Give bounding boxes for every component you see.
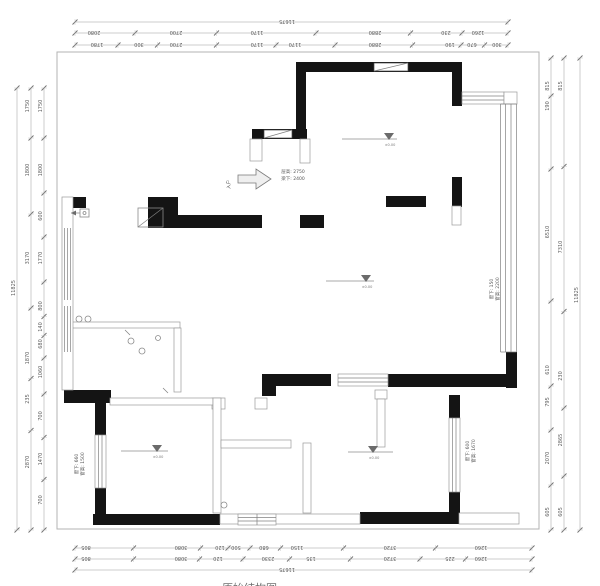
dim-left-total: 11825 <box>11 86 20 533</box>
dim-value: 2080 <box>88 29 101 35</box>
partition-bath-right <box>174 328 181 392</box>
level-marker: ±0.00 <box>326 275 374 289</box>
floor-plan-canvas: ±0.00 ±0.00 ±0.00 ±0.00 入户 层高: 2750 梁下: … <box>0 0 600 586</box>
dim-value: 11675 <box>279 566 295 572</box>
dim-value: 3720 <box>384 555 397 561</box>
wall-br-right-upper <box>449 395 460 418</box>
dim-value: 2880 <box>369 29 382 35</box>
dim-value: 2700 <box>170 41 183 47</box>
floor-drain-icon <box>139 348 145 354</box>
wall-bottom-thin-right <box>459 513 519 524</box>
ceiling-note-line1: 层高: 2750 <box>281 168 305 175</box>
window-right-note-line2: 窗高: 2200 <box>494 277 501 301</box>
door-jamb <box>452 206 461 225</box>
dim-value: 1750 <box>38 100 44 113</box>
partition-room-v <box>303 443 311 513</box>
dim-value: 1170 <box>251 29 264 35</box>
windows <box>65 92 518 525</box>
dim-value: 1150 <box>291 544 304 550</box>
dim-value: 670 <box>467 41 477 47</box>
dim-value: 2880 <box>369 41 382 47</box>
partition-room-v2 <box>377 399 385 447</box>
dim-value: 11825 <box>574 287 580 303</box>
dim-value: 190 <box>545 101 551 111</box>
dim-value: 605 <box>545 507 551 517</box>
level-marker: ±0.00 <box>121 445 168 459</box>
dim-value: 500 <box>231 544 241 550</box>
dim-value: 1170 <box>289 41 302 47</box>
dim-value: 3170 <box>25 252 31 265</box>
dim-value: 300 <box>492 41 502 47</box>
entry-label: 入户 <box>225 180 232 189</box>
dim-value: 300 <box>134 41 144 47</box>
pipe-icon <box>85 316 91 322</box>
pipe-icon <box>76 316 82 322</box>
dim-value: 1770 <box>38 252 44 265</box>
wall-mid-right-h <box>386 196 426 207</box>
entry-arrow-icon <box>238 169 271 189</box>
dim-value: 680 <box>259 544 269 550</box>
dim-value: 700 <box>38 495 44 505</box>
dim-value: 1060 <box>38 366 44 379</box>
partition-hall-left <box>213 398 221 513</box>
window-right-long <box>501 104 517 352</box>
dim-value: 2865 <box>558 434 564 447</box>
dim-value: 795 <box>545 397 551 407</box>
dim-value: 1750 <box>25 100 31 113</box>
window-right-note-line1: 窗下: 150 <box>488 279 495 300</box>
dim-value: 135 <box>306 555 316 561</box>
dim-value: 700 <box>38 411 44 421</box>
floor-plan-drawing: ±0.00 ±0.00 ±0.00 ±0.00 入户 层高: 2750 梁下: … <box>0 0 600 586</box>
dim-value: 2330 <box>262 555 275 561</box>
wall-bl-left-upper <box>95 390 106 435</box>
window-top-right <box>462 92 517 104</box>
door-jamb <box>255 398 267 409</box>
door-jamb <box>250 139 262 161</box>
window-left-note-line2: 窗高: 1500 <box>79 452 86 476</box>
dim-value: 6510 <box>545 226 551 239</box>
window-br-note-line2: 窗高: 1670 <box>470 439 477 463</box>
wall-entry-stub <box>300 215 324 228</box>
dim-value: 2700 <box>170 29 183 35</box>
wall-mid-right-v <box>452 177 462 207</box>
gas-meter-icon <box>71 209 89 217</box>
dim-value: 11825 <box>11 280 17 296</box>
dim-right-total: 11825 <box>574 56 583 533</box>
partition-bath-top <box>63 322 180 328</box>
dim-left-outer: 17501800317018702352870 <box>25 86 34 533</box>
wall-entry <box>178 215 262 228</box>
dim-value: 1780 <box>91 41 104 47</box>
floor-drain-icon <box>156 336 161 341</box>
wall-bl-left-lower <box>95 488 106 514</box>
dim-value: 2870 <box>25 456 31 469</box>
dim-value: 600 <box>38 211 44 221</box>
tick-mark <box>125 330 130 335</box>
dim-value: 1260 <box>472 29 485 35</box>
window-mid-ladder <box>338 374 388 386</box>
dim-value: 805 <box>81 544 91 550</box>
wall-br-right-lower <box>449 492 460 514</box>
dim-top-inner: 17803002700117011702880190670300 <box>73 41 511 48</box>
dim-value: 3080 <box>175 555 188 561</box>
dim-value: 1800 <box>25 164 31 177</box>
level-value: ±0.00 <box>362 285 373 289</box>
dim-value: 800 <box>38 301 44 311</box>
door-jamb <box>375 390 387 399</box>
wall-bottom-mid-right <box>388 374 517 387</box>
window-bottom-ladder <box>238 514 276 525</box>
dim-value: 7310 <box>558 241 564 254</box>
level-value: ±0.00 <box>385 143 396 147</box>
partition-hall-top <box>110 398 213 405</box>
dim-value: 1260 <box>475 555 488 561</box>
floor-drain-icon <box>128 338 134 344</box>
dim-value: 11675 <box>279 18 295 24</box>
level-value: ±0.00 <box>369 456 380 460</box>
dim-value: 190 <box>445 41 455 47</box>
dim-value: 610 <box>545 365 551 375</box>
floor-drain-icon <box>221 502 227 508</box>
window-bottom-left <box>95 435 106 488</box>
window-br-note-line1: 窗下: 600 <box>464 441 471 462</box>
dim-value: 140 <box>38 322 44 332</box>
wall-br-bottom <box>360 512 460 524</box>
dim-value: 1870 <box>25 352 31 365</box>
wall-living-right <box>452 72 462 106</box>
window-bottom-right <box>449 418 460 492</box>
partition-room-h <box>221 440 291 448</box>
wall-bottom-mid-stub <box>262 374 276 396</box>
dim-top-outer: 20802700117028802301260 <box>73 29 511 36</box>
dim-value: 120 <box>215 544 225 550</box>
dim-value: 805 <box>81 555 91 561</box>
dim-value: 815 <box>558 81 564 91</box>
dim-value: 120 <box>213 555 223 561</box>
dim-value: 680 <box>38 339 44 349</box>
door-jamb <box>300 139 310 163</box>
dim-value: 1470 <box>38 453 44 466</box>
tick-mark <box>163 388 168 393</box>
level-marker: ±0.00 <box>342 133 397 147</box>
dim-right-outer: 81573102302865605 <box>558 56 567 533</box>
dim-value: 2070 <box>545 452 551 465</box>
dim-top-total: 11675 <box>73 18 511 25</box>
window-left-note-line1: 窗下: 660 <box>73 454 80 475</box>
level-value: ±0.00 <box>153 455 164 459</box>
dim-value: 225 <box>445 555 455 561</box>
ceiling-note-line2: 梁下: 2400 <box>281 175 305 182</box>
dim-value: 3720 <box>384 544 397 550</box>
dim-value: 815 <box>545 81 551 91</box>
dim-value: 1260 <box>475 544 488 550</box>
dim-bottom-outer: 8053080120233013537202251260 <box>73 555 535 562</box>
dim-value: 605 <box>558 507 564 517</box>
dim-value: 230 <box>441 29 451 35</box>
dim-value: 235 <box>25 394 31 404</box>
level-marker: ±0.00 <box>348 446 393 460</box>
dim-bottom-inner: 8053080120500680115037201260 <box>73 544 535 551</box>
wall-living-left <box>296 72 306 138</box>
dim-value: 1800 <box>38 164 44 177</box>
dim-right-inner: 81519065106107952070605 <box>545 56 554 533</box>
dim-value: 230 <box>558 371 564 381</box>
dim-bottom-total: 11675 <box>73 566 535 573</box>
dim-value: 3080 <box>175 544 188 550</box>
dim-value: 1170 <box>251 41 264 47</box>
dim-left-inner: 17501800600177080014068010607001470700 <box>38 86 47 533</box>
drawing-title-fragment: 原始结构图 <box>222 581 277 586</box>
wall-bl-bottom <box>93 514 220 525</box>
beam-hatches <box>264 63 408 138</box>
